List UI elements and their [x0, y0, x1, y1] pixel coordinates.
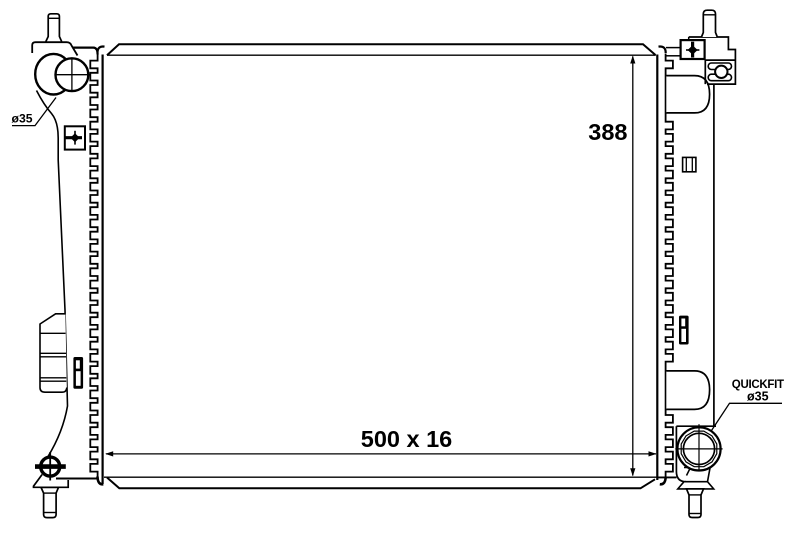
svg-text:ø35: ø35: [12, 112, 33, 126]
svg-text:ø35: ø35: [747, 390, 769, 404]
svg-text:500 x 16: 500 x 16: [361, 426, 452, 452]
svg-text:388: 388: [588, 119, 627, 145]
